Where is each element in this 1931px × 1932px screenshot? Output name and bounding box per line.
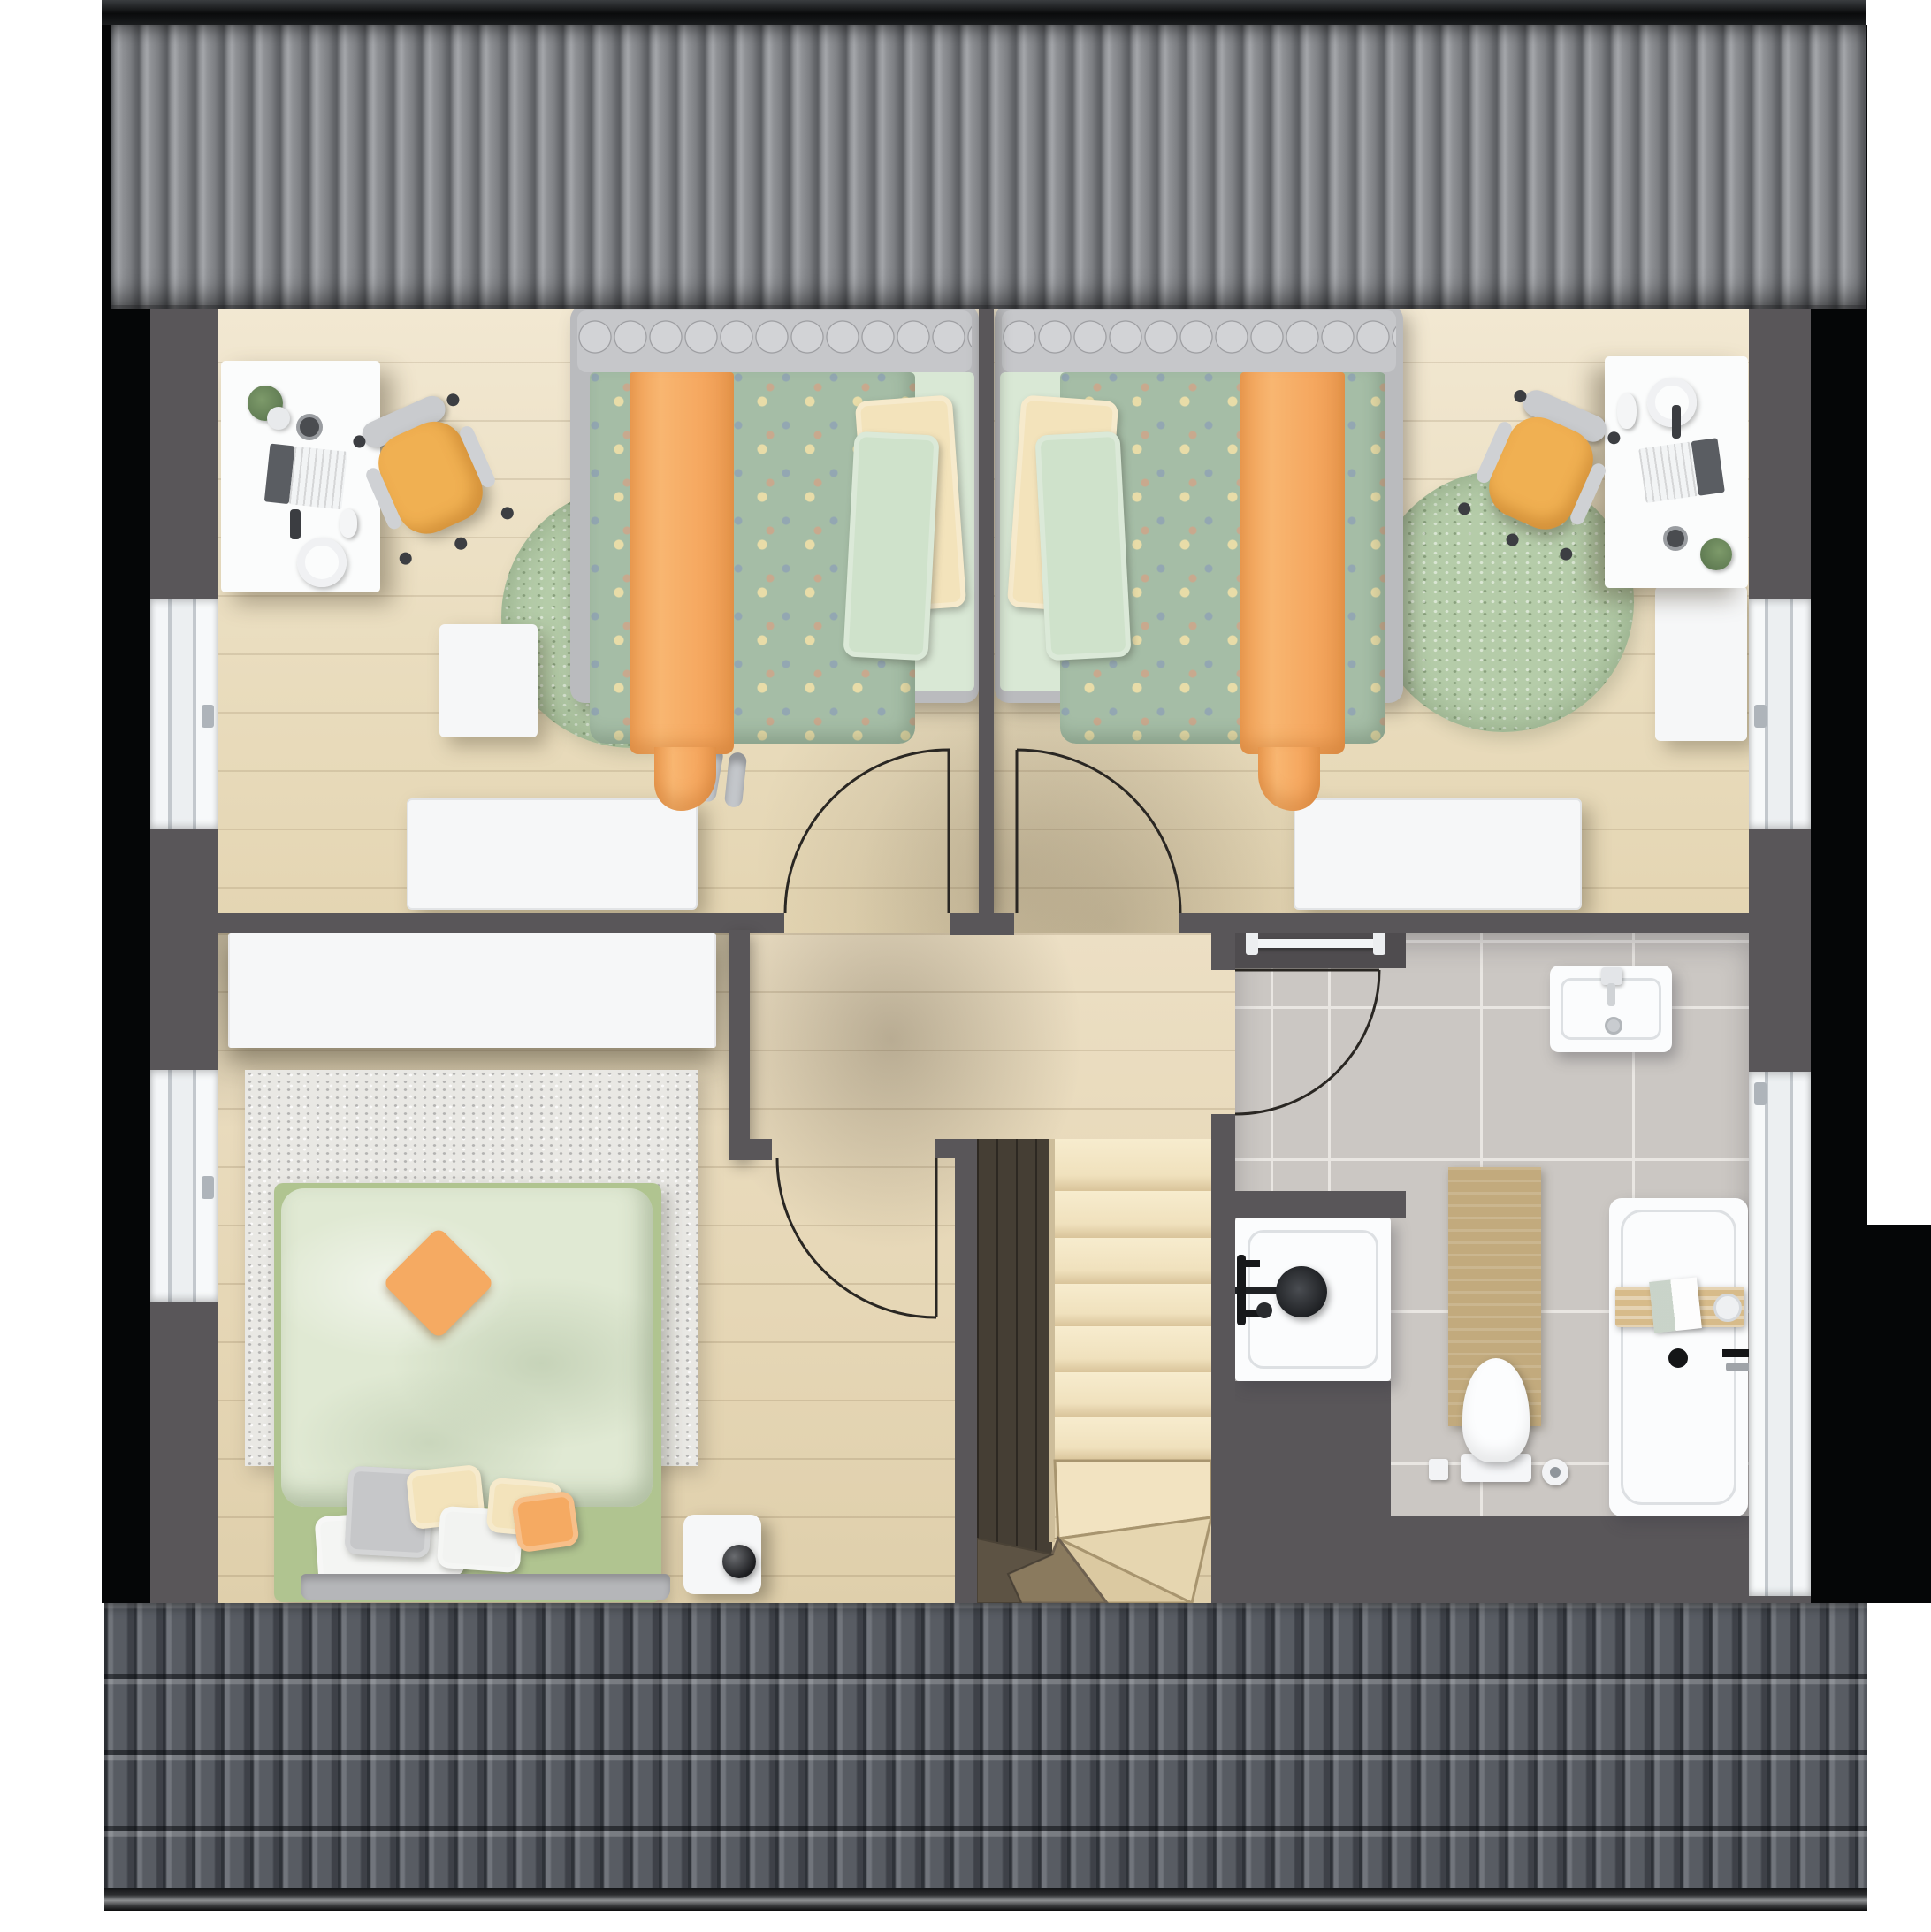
floor-plan — [0, 0, 1931, 1932]
window-right-bathroom — [1749, 1072, 1811, 1596]
window-right-bedroom2 — [1749, 599, 1811, 829]
ridge-bar-top — [102, 0, 1866, 25]
door-bedroom2 — [1017, 750, 1180, 913]
wall-exterior-right — [1749, 303, 1811, 1603]
roof-bottom — [104, 1603, 1867, 1888]
eaves-gutter — [104, 1888, 1867, 1911]
wall-exterior-left — [150, 303, 218, 1603]
roof-top — [111, 25, 1866, 309]
edge-shadow-lower-right — [1867, 1225, 1931, 1603]
door-bedroom1 — [785, 750, 949, 913]
door-bathroom — [1235, 970, 1379, 1114]
door-master — [777, 1158, 936, 1317]
window-left-bedroom1 — [150, 599, 218, 829]
window-left-master — [150, 1070, 218, 1302]
